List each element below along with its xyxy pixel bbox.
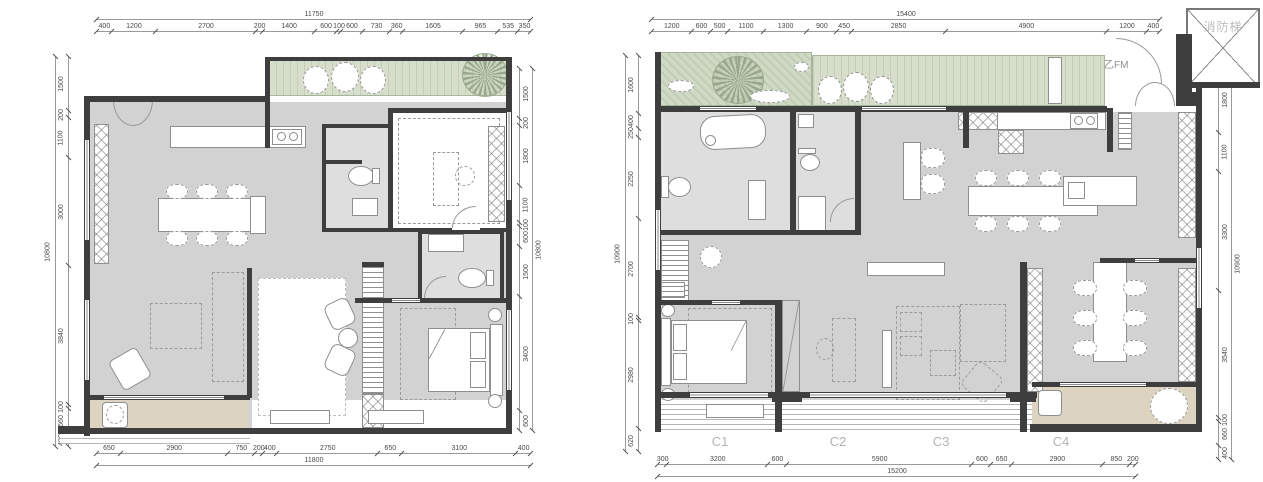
floor-plan-right: 15400 1200600500110013009004502850490012… <box>0 0 1263 482</box>
dining-chair <box>1007 170 1029 186</box>
blanket-fold <box>731 321 746 351</box>
dining-chair <box>1007 216 1029 232</box>
dim-chain-bottom-total: 15200 <box>658 464 1136 477</box>
sofa-chaise <box>960 304 1006 362</box>
plant-symbol <box>700 246 722 268</box>
c1-door-gap <box>712 301 740 304</box>
dining-chair <box>1039 170 1061 186</box>
wall-bottom-c4 <box>1030 424 1202 432</box>
dining-chair <box>1123 280 1147 296</box>
bush-symbol <box>870 76 894 104</box>
wall-bath2-right <box>855 112 861 235</box>
wall-c3-c4 <box>1020 262 1027 432</box>
dim-chain-right-total: 10900 <box>1231 68 1245 460</box>
chair <box>921 148 945 168</box>
dining-chair <box>1073 340 1097 356</box>
window-top-b <box>862 107 946 110</box>
chair <box>921 174 945 194</box>
nightstand-lamp <box>661 304 675 317</box>
entry-door-leaf-left <box>1135 82 1155 106</box>
unit-label-c1: C1 <box>700 434 740 450</box>
burner-icon <box>1086 116 1095 125</box>
sliding-door-panel <box>782 300 800 392</box>
dining-chair <box>1123 340 1147 356</box>
window-left <box>656 210 660 270</box>
rock-symbol <box>668 80 694 92</box>
desk-chair <box>816 338 834 360</box>
bathtub-faucet <box>705 135 716 146</box>
rock-symbol <box>750 90 790 103</box>
bedroom-shelf <box>661 282 685 298</box>
window-bottom-b <box>810 393 1006 397</box>
dim-chain-left-segments: 1600400250225027001002980620 <box>625 56 639 452</box>
wall-bath1-bottom <box>661 230 791 235</box>
toilet-tank <box>798 148 816 154</box>
wall-c1-c2 <box>775 300 782 432</box>
wall-kitchen-stub-a <box>963 108 969 148</box>
deck-column <box>1048 57 1062 104</box>
pillow <box>673 353 687 380</box>
floor-plan-canvas: 11750 4001200270020014006001006007303601… <box>0 0 1263 482</box>
balcony-bench <box>706 404 764 418</box>
wall-kitchen-stub-b <box>1107 108 1113 152</box>
toilet-symbol <box>668 177 691 197</box>
entry-door-leaf-right <box>1155 82 1175 106</box>
window-right <box>1197 248 1201 308</box>
fire-door-label: 乙FM <box>1104 56 1144 70</box>
dining-chair <box>1039 216 1061 232</box>
dining-chair <box>1073 310 1097 326</box>
console-table <box>903 142 921 200</box>
bush-symbol <box>818 76 842 104</box>
fire-stair-label: 消防梯 <box>1186 8 1260 44</box>
unit-label-c3: C3 <box>921 434 961 450</box>
dining-chair <box>1123 310 1147 326</box>
headboard <box>661 318 671 386</box>
sofa-cushion <box>900 312 922 332</box>
dining-chair <box>1073 280 1097 296</box>
rock-symbol <box>794 62 809 72</box>
wall-shaft-bottom <box>1192 82 1260 88</box>
dining-chair <box>975 216 997 232</box>
sofa-cushion <box>900 336 922 356</box>
planter <box>1038 390 1062 416</box>
burner-icon <box>1074 116 1083 125</box>
sink-symbol <box>798 114 814 128</box>
closet <box>1027 268 1043 392</box>
wall-bath2-bottom <box>796 230 861 235</box>
vanity-sink <box>748 180 766 220</box>
wall-bath-divider <box>790 112 796 235</box>
c4-door-gap <box>1135 259 1159 262</box>
island-sink <box>1068 182 1085 199</box>
window-top-a <box>700 107 756 110</box>
window-bottom-a <box>690 393 768 397</box>
vanity-sink <box>798 196 826 232</box>
dining-chair <box>975 170 997 186</box>
ottoman <box>930 350 956 376</box>
unit-label-c2: C2 <box>818 434 858 450</box>
wardrobe <box>1178 112 1196 238</box>
wall-shaft-left <box>1176 34 1192 96</box>
tv-console <box>867 262 945 276</box>
tall-cabinet <box>998 130 1024 154</box>
dining-table-c4 <box>1093 262 1127 362</box>
dim-chain-top-segments: 120060050011001300900450285049001200400 <box>652 19 1160 32</box>
unit-label-c4: C4 <box>1041 434 1081 450</box>
dim-chain-left-total: 10900 <box>612 56 626 452</box>
planter-round <box>1150 388 1188 424</box>
shelf-panel <box>882 330 892 388</box>
pantry-shelf <box>1118 112 1132 150</box>
desk <box>832 318 856 382</box>
wardrobe <box>1178 268 1196 382</box>
bush-symbol <box>843 72 869 102</box>
dim-chain-right-segments: 1800110033003540100660400 <box>1218 68 1232 460</box>
pillow <box>673 324 687 351</box>
c4-balcony-window <box>1060 383 1146 386</box>
toilet-symbol <box>800 154 820 171</box>
